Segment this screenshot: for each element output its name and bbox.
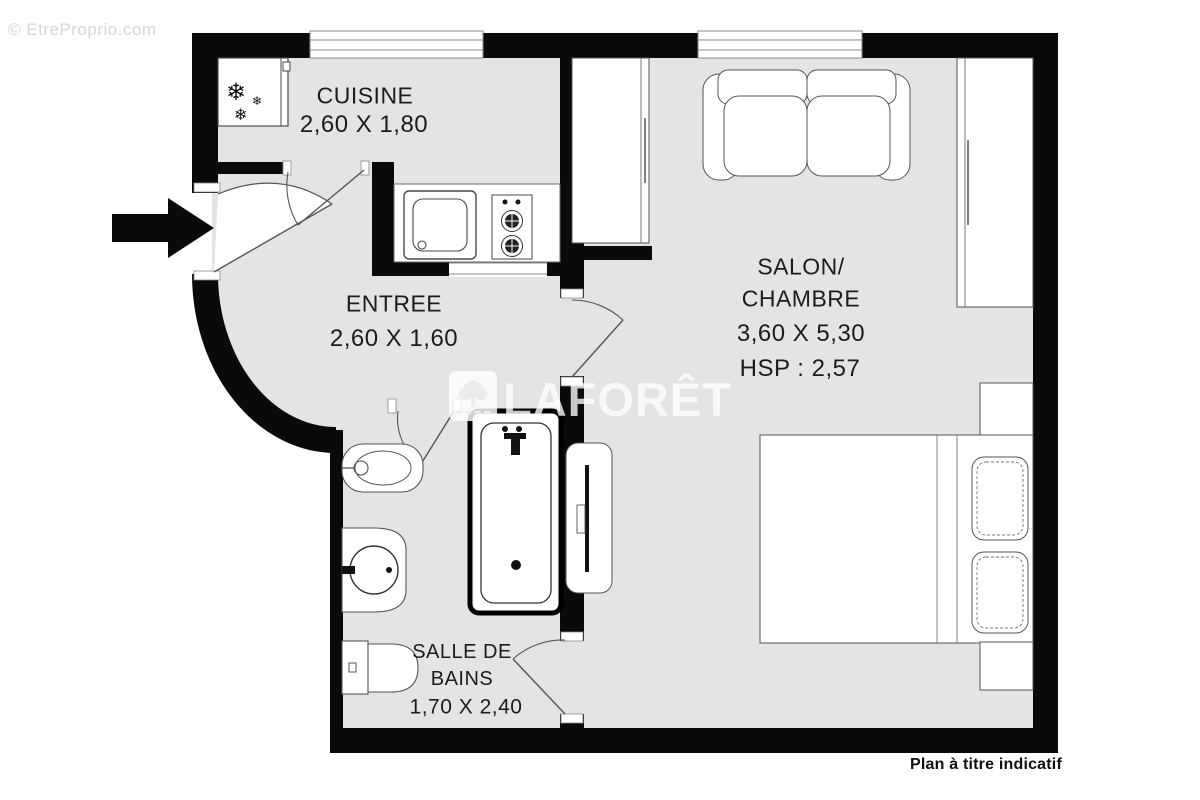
window-salon bbox=[698, 31, 862, 58]
stove bbox=[492, 195, 532, 259]
nightstand-top bbox=[980, 383, 1033, 435]
snowflake-icon: ❄ bbox=[234, 107, 247, 124]
window-cuisine bbox=[310, 31, 483, 58]
toilet bbox=[342, 641, 418, 694]
cuisine-dims: 2,60 X 1,80 bbox=[300, 113, 428, 137]
nightstand-bottom bbox=[980, 642, 1033, 690]
sdb-dims: 1,70 X 2,40 bbox=[410, 697, 523, 718]
sdb-label-line2: BAINS bbox=[431, 669, 494, 689]
pillow bbox=[972, 552, 1028, 633]
burner-icon bbox=[502, 236, 523, 257]
etreproprio-watermark: © EtreProprio.com bbox=[8, 20, 157, 40]
sdb-label-line1: SALLE DE bbox=[412, 642, 512, 662]
desk bbox=[566, 443, 612, 593]
snowflake-icon: ❄ bbox=[252, 94, 262, 108]
drain-icon bbox=[511, 560, 521, 570]
snowflake-icon: ❄ bbox=[226, 79, 246, 106]
kitchen-sink bbox=[404, 191, 476, 259]
pillow bbox=[972, 457, 1028, 540]
faucet-icon bbox=[342, 566, 355, 574]
sofa bbox=[703, 70, 910, 180]
salon-hsp: HSP : 2,57 bbox=[740, 357, 861, 381]
entrance-arrow-icon bbox=[112, 198, 214, 258]
fridge: ❄ ❄ ❄ bbox=[218, 58, 290, 126]
entree-label: ENTREE bbox=[346, 293, 442, 316]
wardrobe-left bbox=[572, 58, 649, 243]
salon-dims: 3,60 X 5,30 bbox=[737, 322, 865, 346]
entree-dims: 2,60 X 1,60 bbox=[330, 327, 458, 351]
bed bbox=[760, 435, 1033, 643]
plan-disclaimer: Plan à titre indicatif bbox=[910, 756, 1062, 774]
burner-icon bbox=[502, 211, 523, 232]
salon-label-line1: SALON/ bbox=[757, 256, 844, 279]
wardrobe-right bbox=[957, 58, 1033, 307]
salon-label-line2: CHAMBRE bbox=[742, 288, 861, 311]
washbasin bbox=[342, 528, 406, 612]
laforet-watermark: LAFORÊT bbox=[503, 372, 732, 427]
floor-plan-page: ❄ ❄ ❄ bbox=[0, 0, 1200, 800]
pass-through-opening bbox=[449, 261, 547, 277]
bidet bbox=[342, 444, 423, 492]
bathtub bbox=[470, 411, 561, 613]
tree-icon bbox=[449, 371, 497, 421]
cuisine-label: CUISINE bbox=[317, 85, 414, 108]
laforet-logo-icon bbox=[449, 371, 497, 421]
